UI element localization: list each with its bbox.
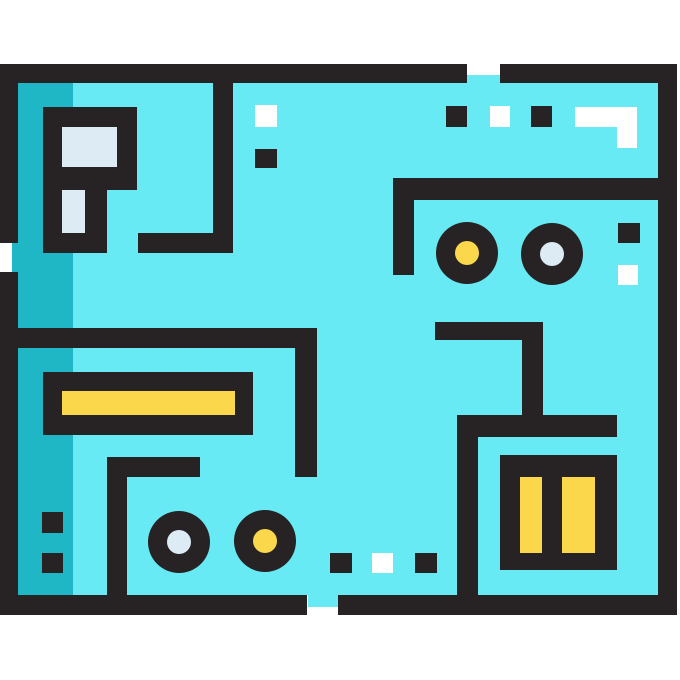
solder-pad-black-bottom-1 xyxy=(330,553,352,573)
border-top-left-segment xyxy=(0,64,467,83)
pad-black-right-edge xyxy=(618,223,640,243)
resistor-band-yellow xyxy=(62,391,235,415)
border-right xyxy=(658,64,677,615)
via-bottomleft-left-core-pale xyxy=(167,530,191,554)
solder-pad-white-bottom xyxy=(372,553,393,573)
via-bottomleft-right-core-yellow xyxy=(253,529,277,553)
pad-black-left-strip-1 xyxy=(42,512,63,533)
trace-center-vertical xyxy=(295,328,317,477)
border-bottom-left-segment xyxy=(0,595,307,615)
solder-pad-black-topcenter xyxy=(255,149,277,168)
chip-topleft-window-lower xyxy=(62,190,85,233)
solder-pad-white-topcenter xyxy=(255,105,277,127)
trace-center-horizontal xyxy=(0,328,317,348)
solder-pad-black-topright-1 xyxy=(446,106,467,127)
solder-pad-black-topright-2 xyxy=(531,106,552,127)
circuit-board-illustration xyxy=(0,0,680,680)
pad-black-left-strip-2 xyxy=(42,553,63,573)
battery-cell-right-yellow xyxy=(562,477,595,553)
bracket-topright-horizontal xyxy=(393,178,677,200)
via-topright-left-core-yellow xyxy=(455,241,479,265)
trace-topleft-horizontal xyxy=(138,233,233,253)
trace-topleft-vertical xyxy=(213,83,233,253)
border-top-right-segment xyxy=(500,64,677,83)
solder-pad-black-bottom-2 xyxy=(415,553,437,573)
bracket-topright-vertical xyxy=(393,178,414,275)
border-bottom-right-segment xyxy=(338,595,677,615)
bracket-bottomright-horizontal xyxy=(457,415,617,437)
border-left-upper-segment xyxy=(0,64,18,243)
battery-body xyxy=(500,455,617,570)
trace-bottomleft-vertical xyxy=(107,457,127,595)
board-tab-bottom-gap xyxy=(308,595,338,607)
chip-topleft-window-upper xyxy=(62,127,117,167)
trace-midright-vertical xyxy=(522,322,543,417)
board-tab-left-gap xyxy=(12,243,18,272)
pad-white-right-edge xyxy=(618,265,638,285)
bracket-bottomright-vertical xyxy=(457,415,478,595)
trace-white-l-vertical xyxy=(617,107,637,148)
via-topright-right-core-pale xyxy=(540,242,564,266)
board-tab-top-gap xyxy=(467,75,500,83)
solder-pad-white-topright xyxy=(490,106,510,127)
border-left-lower-segment xyxy=(0,272,18,615)
battery-cell-left-yellow xyxy=(520,477,542,553)
